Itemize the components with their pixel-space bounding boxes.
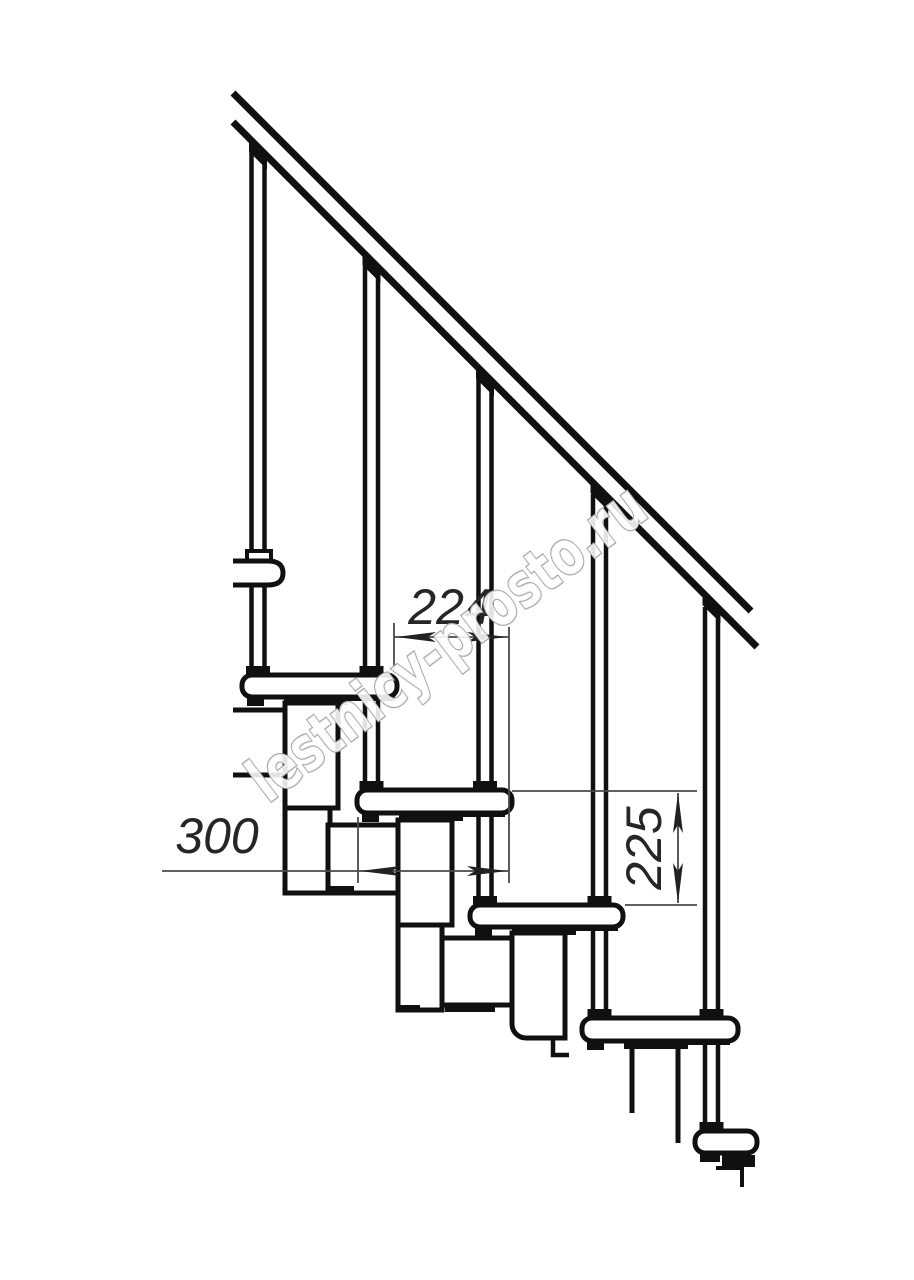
tread-3 [470, 905, 623, 927]
tread-5 [695, 1131, 757, 1153]
staircase-drawing: 224 300 225 lestnicy-prosto.ru [0, 0, 914, 1280]
dimension-label-225: 225 [616, 806, 672, 891]
watermark-text: lestnicy-prosto.ru [233, 469, 660, 816]
staircase-drawing-page: 224 300 225 lestnicy-prosto.ru [0, 0, 914, 1280]
baluster-1 [252, 152, 265, 675]
baluster-5 [705, 607, 718, 1131]
lower-landing-detail [716, 1168, 742, 1187]
module-chain-4 [632, 1043, 678, 1143]
module-chain-3 [512, 933, 569, 1055]
tread-4 [582, 1018, 738, 1041]
tread-2 [357, 790, 512, 813]
lower-rail-stub [233, 551, 283, 585]
dimension-label-300: 300 [175, 808, 259, 864]
